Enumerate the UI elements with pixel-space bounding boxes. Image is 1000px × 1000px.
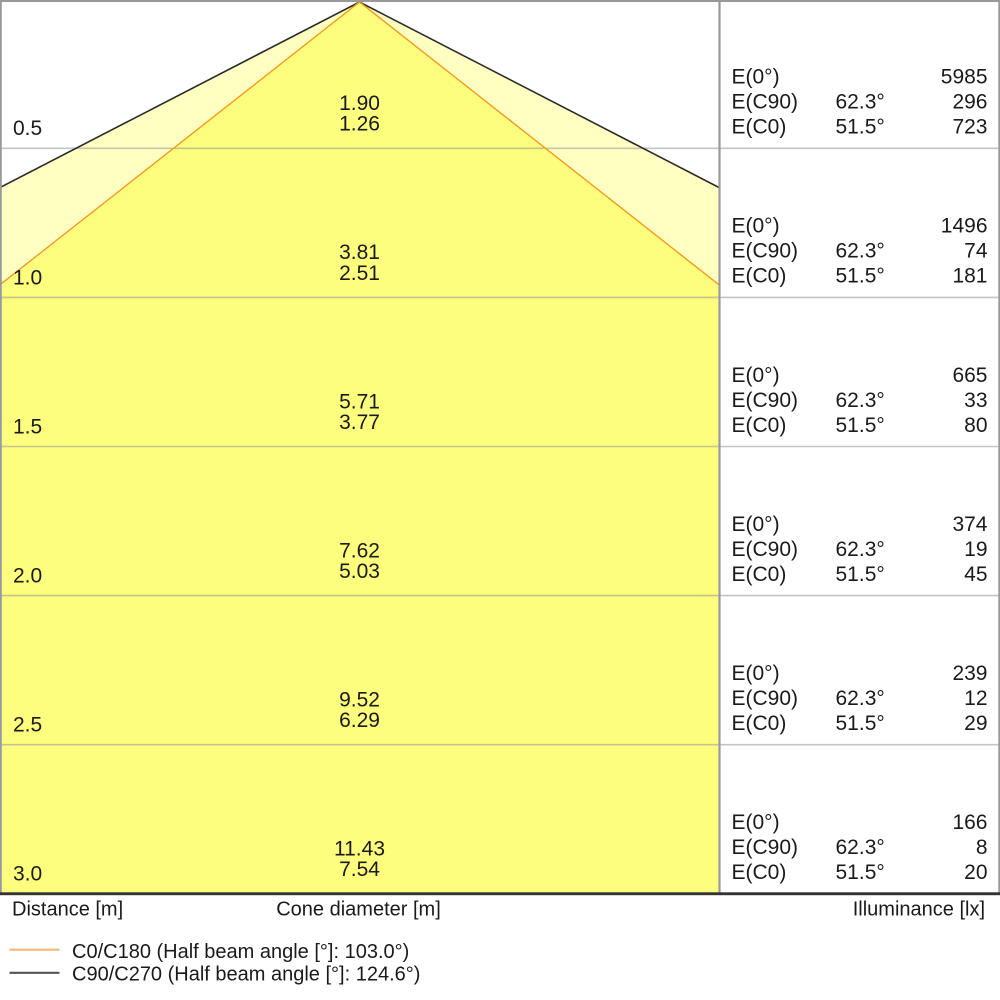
svg-text:80: 80 xyxy=(964,414,987,437)
svg-text:45: 45 xyxy=(964,563,987,586)
svg-text:E(C0): E(C0) xyxy=(732,265,787,288)
svg-text:0.5: 0.5 xyxy=(13,117,42,140)
svg-text:2.0: 2.0 xyxy=(13,565,42,588)
svg-text:62.3°: 62.3° xyxy=(836,836,885,859)
svg-text:374: 374 xyxy=(952,513,987,536)
svg-text:E(C0): E(C0) xyxy=(732,414,787,437)
svg-text:Distance [m]: Distance [m] xyxy=(12,898,123,920)
svg-text:E(0°): E(0°) xyxy=(732,513,780,536)
svg-text:2.5: 2.5 xyxy=(13,714,42,737)
svg-text:8: 8 xyxy=(976,836,988,859)
svg-text:1.90: 1.90 xyxy=(339,92,380,115)
svg-text:51.5°: 51.5° xyxy=(836,265,885,288)
svg-text:E(C90): E(C90) xyxy=(732,538,799,561)
svg-text:239: 239 xyxy=(952,662,987,685)
svg-text:62.3°: 62.3° xyxy=(836,389,885,412)
svg-text:C0/C180 (Half beam angle [°]:: C0/C180 (Half beam angle [°]: 103.0°) xyxy=(72,941,409,963)
svg-text:29: 29 xyxy=(964,712,987,735)
svg-text:E(C90): E(C90) xyxy=(732,240,799,263)
svg-text:33: 33 xyxy=(964,389,987,412)
svg-text:62.3°: 62.3° xyxy=(836,687,885,710)
svg-text:3.81: 3.81 xyxy=(339,241,380,264)
svg-text:E(C0): E(C0) xyxy=(732,712,787,735)
svg-text:1.5: 1.5 xyxy=(13,415,42,438)
svg-text:19: 19 xyxy=(964,538,987,561)
svg-text:723: 723 xyxy=(952,116,987,139)
svg-text:5.71: 5.71 xyxy=(339,390,380,413)
svg-text:C90/C270 (Half beam angle [°]:: C90/C270 (Half beam angle [°]: 124.6°) xyxy=(72,964,420,986)
svg-text:E(C90): E(C90) xyxy=(732,836,799,859)
svg-text:3.77: 3.77 xyxy=(339,411,380,434)
svg-text:5985: 5985 xyxy=(941,66,988,89)
svg-text:11.43: 11.43 xyxy=(334,838,385,861)
svg-text:E(C90): E(C90) xyxy=(732,389,799,412)
svg-text:51.5°: 51.5° xyxy=(836,414,885,437)
svg-text:9.52: 9.52 xyxy=(339,689,380,712)
svg-text:20: 20 xyxy=(964,861,987,884)
svg-text:51.5°: 51.5° xyxy=(836,563,885,586)
svg-text:1.0: 1.0 xyxy=(13,266,42,289)
svg-text:166: 166 xyxy=(952,811,987,834)
svg-text:665: 665 xyxy=(952,364,987,387)
svg-text:296: 296 xyxy=(952,91,987,114)
svg-text:51.5°: 51.5° xyxy=(836,861,885,884)
svg-text:181: 181 xyxy=(952,265,987,288)
svg-text:74: 74 xyxy=(964,240,988,263)
svg-text:2.51: 2.51 xyxy=(339,262,380,285)
svg-text:E(C90): E(C90) xyxy=(732,91,799,114)
svg-text:Cone diameter [m]: Cone diameter [m] xyxy=(276,898,441,920)
svg-text:51.5°: 51.5° xyxy=(836,712,885,735)
svg-text:51.5°: 51.5° xyxy=(836,116,885,139)
svg-text:E(0°): E(0°) xyxy=(732,66,780,89)
svg-text:Illuminance [lx]: Illuminance [lx] xyxy=(853,898,985,920)
svg-text:7.62: 7.62 xyxy=(339,539,380,562)
svg-text:62.3°: 62.3° xyxy=(836,240,885,263)
svg-text:E(C0): E(C0) xyxy=(732,563,787,586)
svg-text:1.26: 1.26 xyxy=(339,113,380,136)
svg-text:7.54: 7.54 xyxy=(339,858,380,881)
svg-text:5.03: 5.03 xyxy=(339,560,380,583)
svg-text:3.0: 3.0 xyxy=(13,863,42,886)
svg-text:E(C0): E(C0) xyxy=(732,116,787,139)
svg-text:E(0°): E(0°) xyxy=(732,811,780,834)
svg-text:1496: 1496 xyxy=(941,215,988,238)
svg-text:6.29: 6.29 xyxy=(339,709,380,732)
svg-text:62.3°: 62.3° xyxy=(836,538,885,561)
svg-text:E(C0): E(C0) xyxy=(732,861,787,884)
svg-text:62.3°: 62.3° xyxy=(836,91,885,114)
svg-text:E(C90): E(C90) xyxy=(732,687,799,710)
svg-text:E(0°): E(0°) xyxy=(732,364,780,387)
svg-text:E(0°): E(0°) xyxy=(732,215,780,238)
svg-text:12: 12 xyxy=(964,687,987,710)
svg-text:E(0°): E(0°) xyxy=(732,662,780,685)
